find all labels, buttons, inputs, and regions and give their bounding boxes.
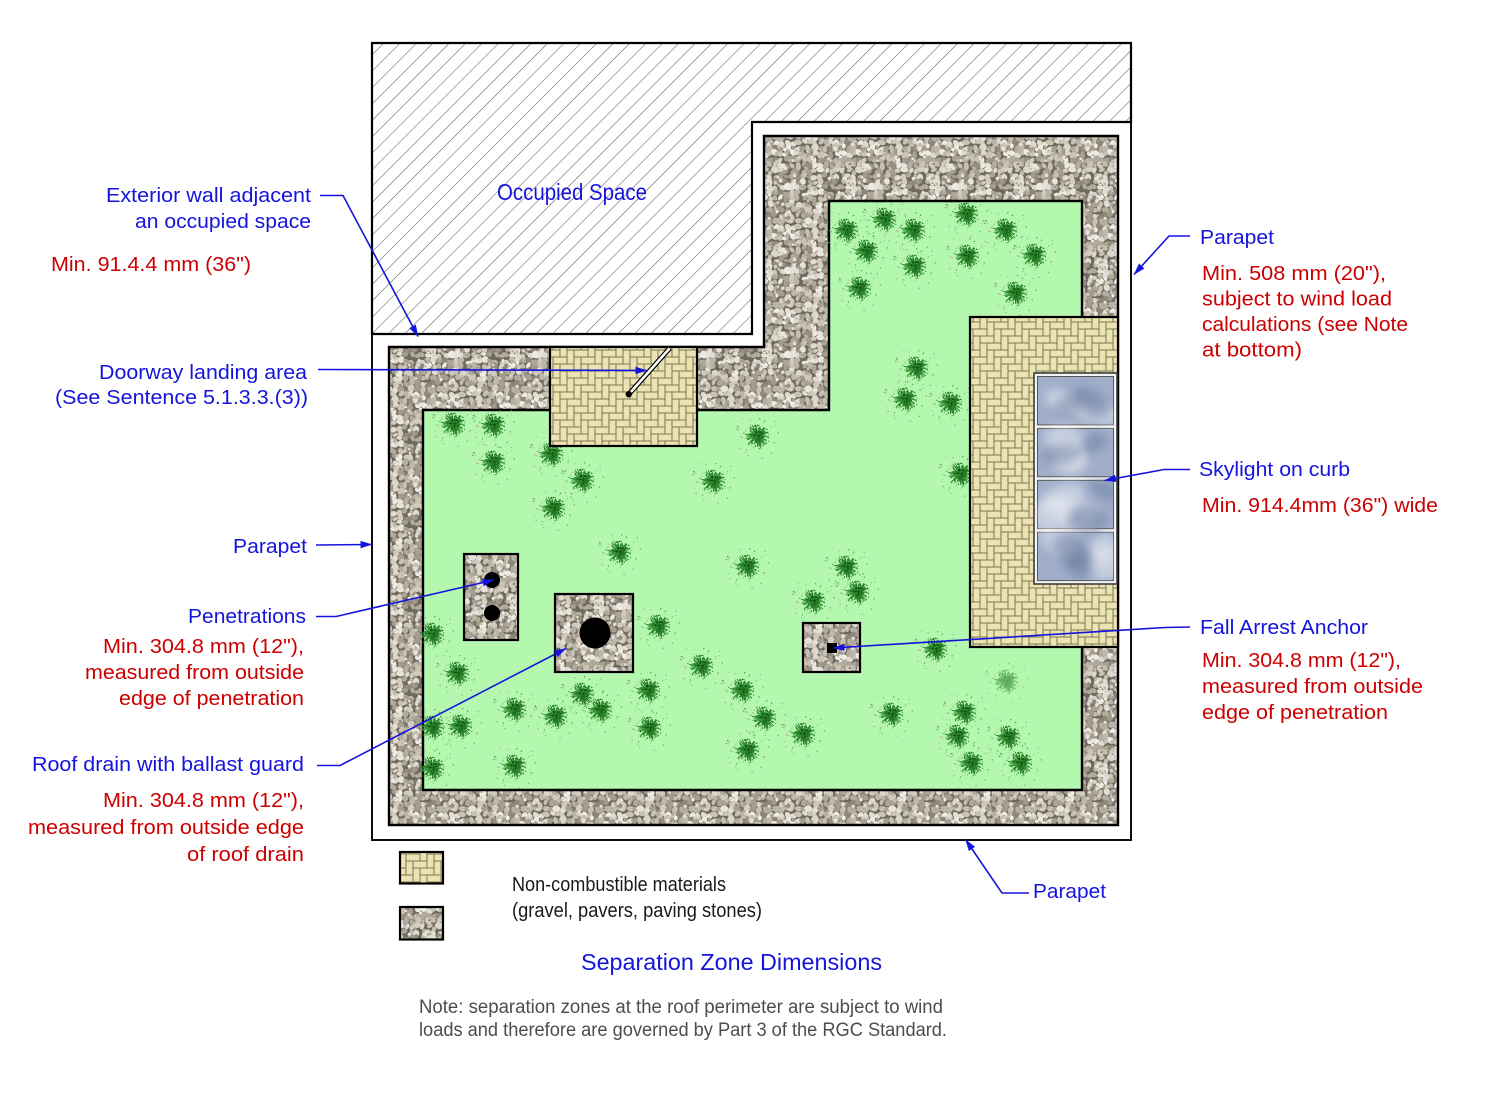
svg-text:loads and therefore are govern: loads and therefore are governed by Part… [419, 1020, 947, 1041]
svg-text:Exterior wall adjacent: Exterior wall adjacent [106, 184, 311, 207]
svg-text:Skylight on curb: Skylight on curb [1199, 458, 1350, 481]
svg-text:Occupied Space: Occupied Space [497, 179, 647, 205]
svg-text:calculations (see Note: calculations (see Note [1202, 313, 1408, 336]
svg-text:Parapet: Parapet [1200, 226, 1274, 249]
svg-text:Note: separation zones at the: Note: separation zones at the roof perim… [419, 997, 943, 1018]
svg-text:Min. 914.4mm (36") wide: Min. 914.4mm (36") wide [1202, 494, 1438, 517]
svg-text:Min. 304.8 mm (12"),: Min. 304.8 mm (12"), [103, 635, 304, 658]
svg-text:measured from outside: measured from outside [1202, 675, 1423, 698]
svg-text:Penetrations: Penetrations [188, 605, 306, 628]
svg-text:of roof drain: of roof drain [187, 843, 304, 866]
svg-text:Min. 304.8 mm (12"),: Min. 304.8 mm (12"), [103, 789, 304, 812]
svg-text:Fall Arrest Anchor: Fall Arrest Anchor [1200, 616, 1368, 639]
svg-text:Separation Zone Dimensions: Separation Zone Dimensions [581, 949, 882, 975]
svg-text:measured from outside edge: measured from outside edge [28, 816, 304, 839]
svg-text:Roof drain with ballast guard: Roof drain with ballast guard [32, 753, 304, 776]
svg-text:Min. 91.4.4 mm (36"): Min. 91.4.4 mm (36") [51, 253, 251, 276]
svg-text:edge of penetration: edge of penetration [119, 687, 304, 710]
svg-text:Doorway landing area: Doorway landing area [99, 361, 308, 384]
svg-text:edge of penetration: edge of penetration [1202, 701, 1388, 724]
svg-text:subject to wind load: subject to wind load [1202, 288, 1392, 311]
svg-text:(See Sentence 5.1.3.3.(3)): (See Sentence 5.1.3.3.(3)) [55, 386, 308, 409]
svg-text:measured from outside: measured from outside [85, 661, 304, 684]
svg-text:at bottom): at bottom) [1202, 339, 1302, 362]
svg-text:Min. 508 mm (20"),: Min. 508 mm (20"), [1202, 262, 1386, 285]
svg-text:(gravel, pavers, paving stones: (gravel, pavers, paving stones) [512, 899, 762, 922]
svg-text:an occupied space: an occupied space [135, 210, 311, 233]
svg-text:Non-combustible materials: Non-combustible materials [512, 873, 726, 896]
svg-text:Parapet: Parapet [233, 535, 307, 558]
svg-text:Parapet: Parapet [1033, 880, 1106, 903]
svg-text:Min. 304.8 mm (12"),: Min. 304.8 mm (12"), [1202, 649, 1401, 672]
